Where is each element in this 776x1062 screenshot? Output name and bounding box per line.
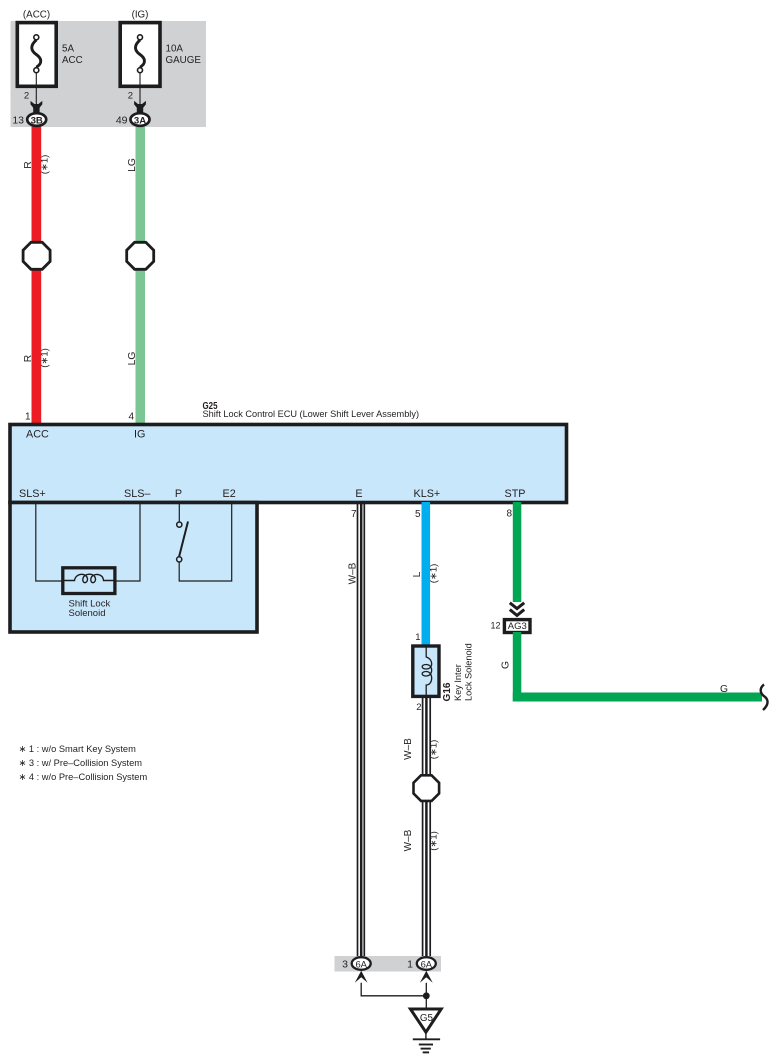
svg-text:Key Inter: Key Inter [453,664,463,701]
svg-text:3B: 3B [31,115,43,126]
svg-text:1: 1 [407,958,413,970]
svg-text:SLS–: SLS– [124,488,150,500]
svg-text:6A: 6A [421,958,433,969]
svg-text:R: R [23,355,34,362]
svg-text:Shift Lock Control ECU (Lower: Shift Lock Control ECU (Lower Shift Leve… [203,409,420,419]
svg-text:3: 3 [342,958,348,970]
svg-text:3A: 3A [134,115,146,126]
svg-text:Solenoid: Solenoid [69,608,106,619]
svg-text:W–B: W–B [348,562,359,584]
svg-text:(∗1): (∗1) [429,564,440,584]
svg-text:R: R [23,161,34,168]
svg-text:(∗1): (∗1) [429,740,440,760]
svg-text:G16: G16 [442,682,453,701]
svg-text:G5: G5 [420,1013,434,1024]
svg-text:AG3: AG3 [508,621,527,632]
svg-text:W–B: W–B [403,829,414,851]
svg-text:E2: E2 [223,488,236,500]
svg-text:4: 4 [128,412,134,423]
svg-text:10A: 10A [166,44,184,55]
svg-text:(∗1): (∗1) [40,348,51,368]
svg-text:SLS+: SLS+ [19,488,46,500]
svg-text:5A: 5A [62,44,74,55]
svg-text:(ACC): (ACC) [23,10,50,21]
svg-text:STP: STP [505,488,526,500]
svg-text:KLS+: KLS+ [414,488,441,500]
svg-text:ACC: ACC [62,55,83,66]
svg-text:6A: 6A [355,958,367,969]
svg-text:IG: IG [134,429,145,441]
svg-text:1: 1 [415,632,420,643]
svg-text:13: 13 [12,114,24,126]
svg-text:G: G [501,661,512,669]
svg-text:LG: LG [127,158,138,172]
svg-text:7: 7 [351,509,357,520]
svg-text:∗ 4 : w/o Pre–Collision System: ∗ 4 : w/o Pre–Collision System [19,772,148,782]
svg-text:1: 1 [25,412,31,423]
svg-text:L: L [412,571,423,577]
svg-text:5: 5 [415,509,421,520]
svg-text:∗ 1 : w/o Smart Key System: ∗ 1 : w/o Smart Key System [19,744,137,754]
svg-text:8: 8 [506,509,512,520]
svg-text:2: 2 [24,91,29,102]
svg-text:E: E [355,488,362,500]
svg-text:(∗1): (∗1) [40,155,51,175]
svg-text:12: 12 [490,621,500,631]
svg-text:P: P [175,488,182,500]
svg-text:2: 2 [416,702,421,713]
svg-text:(∗1): (∗1) [429,831,440,851]
svg-text:W–B: W–B [403,738,414,760]
svg-text:GAUGE: GAUGE [166,55,202,66]
svg-text:(IG): (IG) [132,10,149,21]
svg-text:49: 49 [116,114,128,126]
svg-text:2: 2 [128,91,133,102]
svg-text:∗ 3 : w/ Pre–Collision System: ∗ 3 : w/ Pre–Collision System [19,758,143,768]
svg-text:LG: LG [127,352,138,366]
svg-text:Lock Solenoid: Lock Solenoid [464,643,474,701]
svg-text:ACC: ACC [26,429,49,441]
svg-text:G: G [720,684,728,695]
